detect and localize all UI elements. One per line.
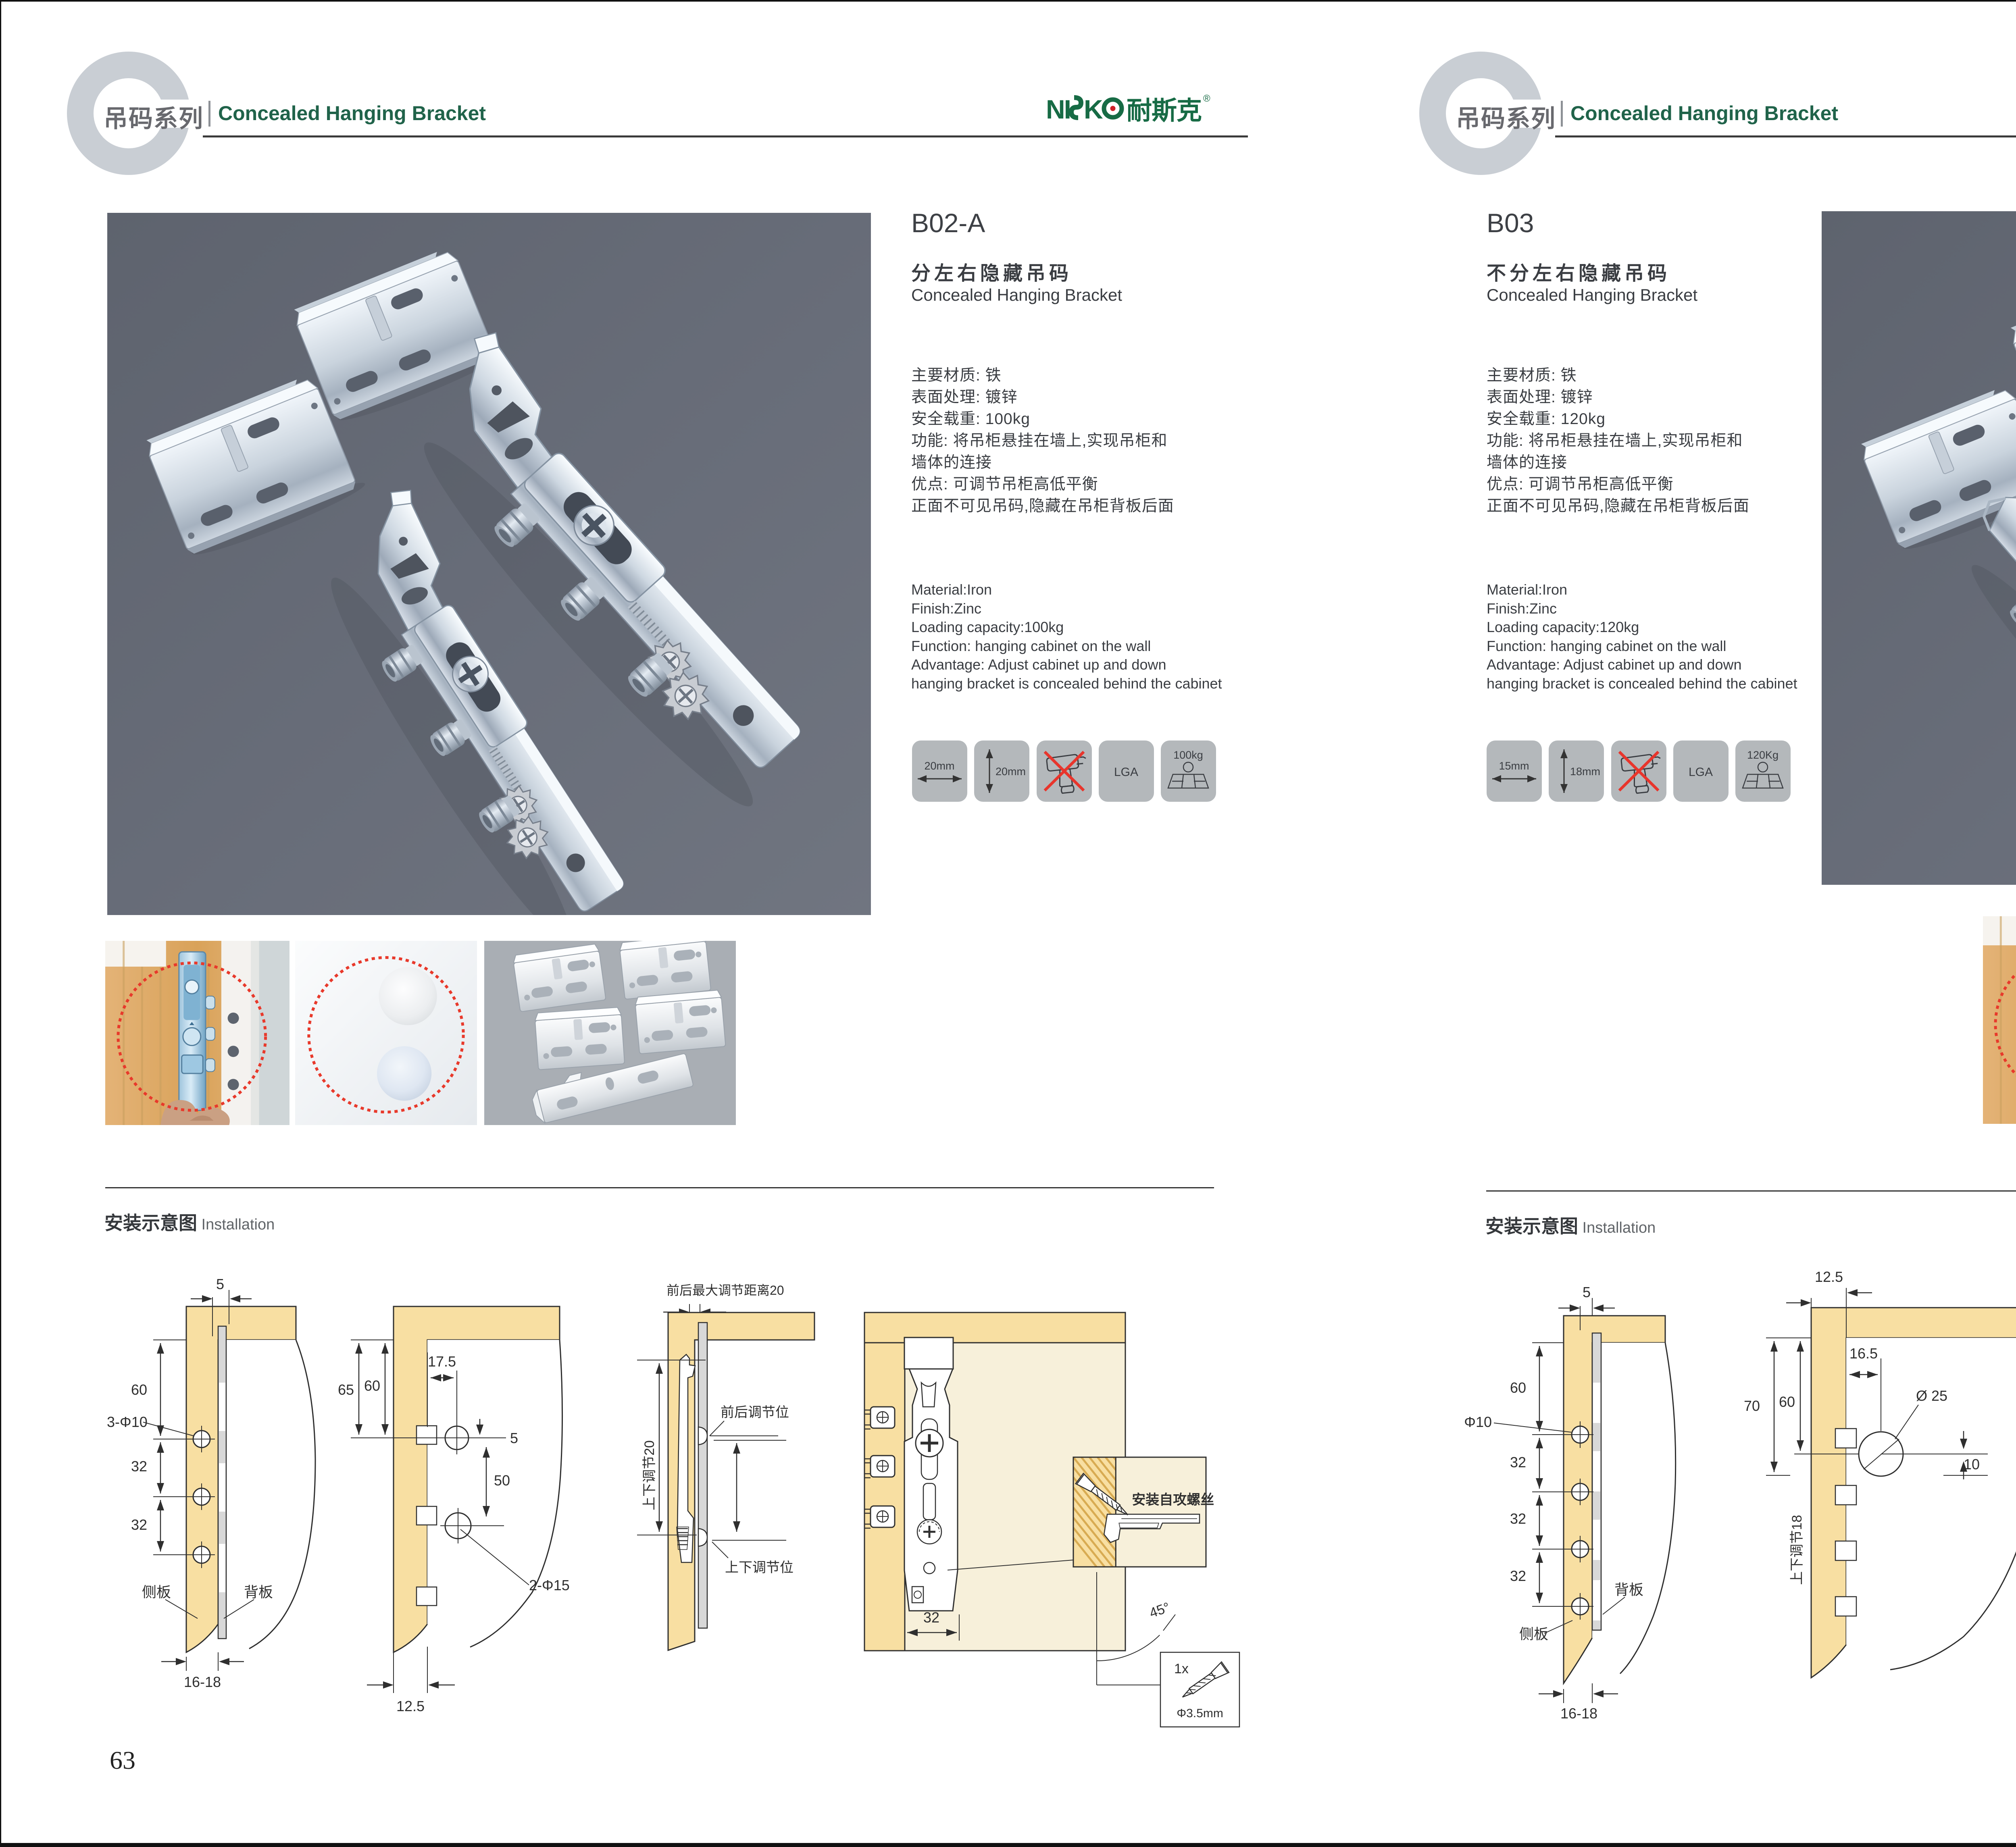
svg-text:16.5: 16.5 [1849,1345,1878,1362]
svg-text:32: 32 [1510,1454,1526,1471]
svg-text:K: K [1084,94,1103,124]
svg-text:上下调节位: 上下调节位 [725,1560,793,1575]
svg-text:32: 32 [1510,1510,1526,1527]
svg-text:Φ10: Φ10 [1464,1414,1492,1430]
svg-text:前后调节位: 前后调节位 [721,1405,789,1420]
svg-text:70: 70 [1744,1398,1760,1414]
svg-text:安装自攻螺丝: 安装自攻螺丝 [1132,1492,1214,1508]
svg-text:60: 60 [131,1381,147,1398]
svg-text:15mm: 15mm [1499,760,1529,772]
svg-text:16-18: 16-18 [1560,1705,1597,1722]
svg-text:16-18: 16-18 [184,1674,221,1690]
svg-text:5: 5 [510,1430,518,1446]
svg-text:32: 32 [1510,1568,1526,1584]
svg-text:上下调节18: 上下调节18 [1789,1515,1805,1585]
svg-text:5: 5 [1583,1284,1591,1300]
svg-text:120Kg: 120Kg [1747,749,1779,761]
svg-text:10: 10 [1964,1456,1980,1473]
svg-text:耐斯克: 耐斯克 [1127,97,1202,125]
svg-text:60: 60 [1510,1379,1526,1396]
svg-text:侧板: 侧板 [1519,1626,1548,1642]
svg-text:LGA: LGA [1689,765,1713,779]
svg-text:32: 32 [131,1516,147,1533]
svg-text:1x: 1x [1174,1661,1189,1676]
svg-text:Φ3.5mm: Φ3.5mm [1177,1707,1223,1720]
svg-text:5: 5 [216,1276,224,1292]
svg-text:12.5: 12.5 [1815,1269,1843,1285]
svg-text:Ø 25: Ø 25 [1916,1387,1947,1404]
svg-text:侧板: 侧板 [142,1584,171,1600]
svg-text:2-Φ15: 2-Φ15 [529,1577,570,1593]
svg-text:12.5: 12.5 [396,1698,425,1714]
svg-text:3-Φ10: 3-Φ10 [107,1414,148,1430]
svg-text:LGA: LGA [1114,765,1138,779]
svg-text:前后最大调节距离20: 前后最大调节距离20 [666,1283,784,1298]
svg-text:®: ® [1203,94,1210,104]
svg-text:18mm: 18mm [1570,765,1600,778]
svg-text:NI: NI [1046,94,1070,124]
svg-text:背板: 背板 [244,1584,273,1600]
svg-text:上下调节20: 上下调节20 [642,1440,657,1510]
svg-text:32: 32 [923,1609,939,1626]
svg-text:32: 32 [131,1458,147,1475]
svg-text:背板: 背板 [1614,1581,1643,1598]
svg-text:17.5: 17.5 [428,1353,456,1370]
svg-text:100kg: 100kg [1173,749,1203,761]
svg-text:20mm: 20mm [924,760,954,772]
svg-text:20mm: 20mm [996,765,1026,778]
svg-text:50: 50 [494,1472,510,1489]
svg-text:60: 60 [1779,1394,1795,1410]
svg-text:60: 60 [364,1377,380,1394]
svg-text:45°: 45° [1148,1599,1172,1621]
svg-text:65: 65 [338,1381,354,1398]
